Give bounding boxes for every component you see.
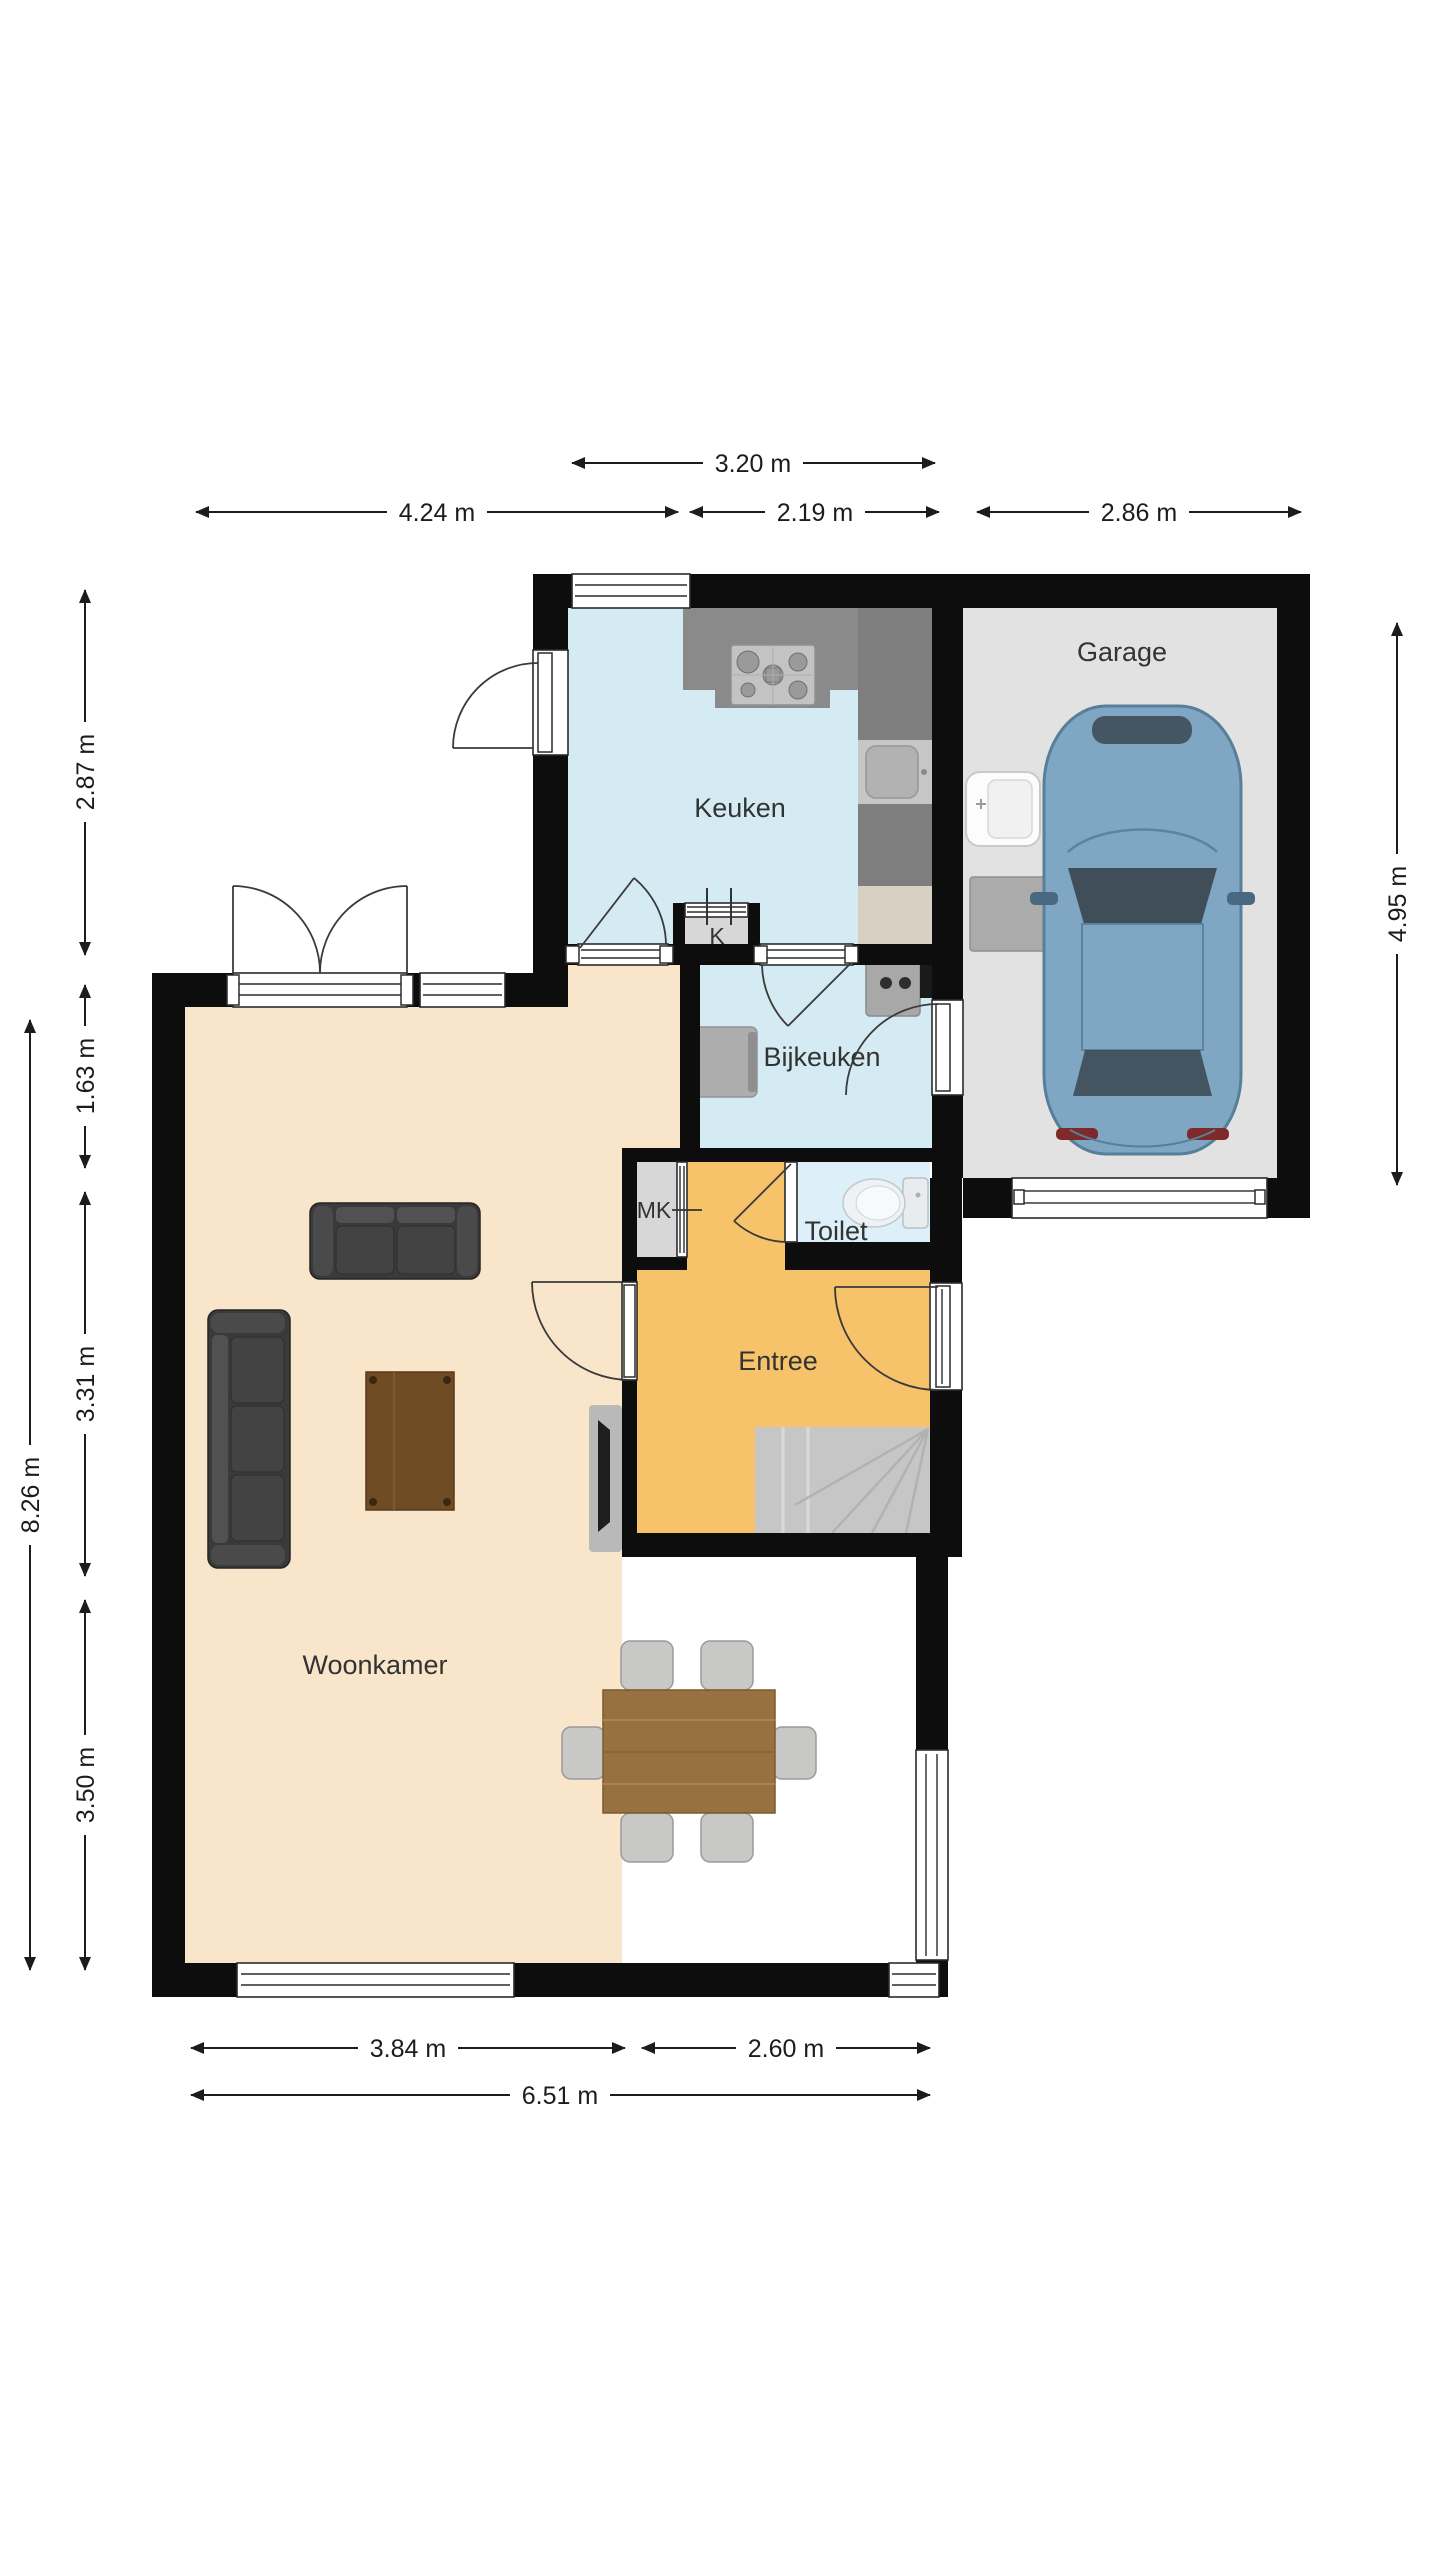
- freezer-edge: [748, 1032, 757, 1092]
- room-label-toilet: Toilet: [804, 1216, 868, 1246]
- chair-icon: [773, 1727, 816, 1779]
- closet-label-k: K: [709, 923, 725, 949]
- sofa-3seat-icon: [208, 1310, 290, 1568]
- coffee-table-icon: [366, 1372, 454, 1510]
- dimension-label: 3.31 m: [72, 1346, 100, 1422]
- car-mirror-right: [1227, 892, 1255, 905]
- car-mirror-left: [1030, 892, 1058, 905]
- dimension-bottom-260: 2.60 m: [642, 2033, 930, 2063]
- counter-beige: [858, 886, 932, 948]
- door-kitchen-back: [453, 650, 568, 755]
- tv-cabinet-icon: [589, 1405, 622, 1552]
- room-label-keuken: Keuken: [694, 793, 786, 823]
- dimension-label: 1.63 m: [72, 1038, 100, 1114]
- dimension-label: 8.26 m: [17, 1457, 45, 1533]
- dimension-top-424: 4.24 m: [196, 497, 678, 527]
- window-kitchen-top: [572, 574, 690, 608]
- garage-door: [1012, 1178, 1267, 1218]
- dimension-left-350: 3.50 m: [70, 1600, 100, 1970]
- floorplan-page: Keuken Garage Bijkeuken Toilet Entree Wo…: [0, 0, 1440, 2560]
- dimension-label: 2.87 m: [72, 734, 100, 810]
- dimension-left-287: 2.87 m: [70, 590, 100, 955]
- room-label-woonkamer: Woonkamer: [302, 1650, 447, 1680]
- room-label-bijkeuken: Bijkeuken: [763, 1042, 880, 1072]
- dimension-label: 2.19 m: [777, 499, 853, 527]
- dimension-left-331: 3.31 m: [70, 1192, 100, 1576]
- window-bottom-small: [889, 1963, 939, 1997]
- floorplan-svg: Keuken Garage Bijkeuken Toilet Entree Wo…: [0, 0, 1440, 2560]
- dimension-label: 4.24 m: [399, 499, 475, 527]
- dimension-top-320: 3.20 m: [572, 448, 935, 478]
- chair-icon: [701, 1813, 753, 1862]
- dimension-label: 2.60 m: [748, 2035, 824, 2063]
- chair-icon: [621, 1813, 673, 1862]
- dimension-label: 4.95 m: [1384, 866, 1412, 942]
- stove-icon: [731, 645, 815, 705]
- dimension-top-219: 2.19 m: [690, 497, 939, 527]
- dimension-left-826: 8.26 m: [15, 1020, 45, 1970]
- dimension-label: 3.50 m: [72, 1747, 100, 1823]
- car-icon: [1030, 706, 1255, 1154]
- dimension-label: 6.51 m: [522, 2082, 598, 2110]
- room-label-garage: Garage: [1077, 637, 1167, 667]
- chair-icon: [621, 1641, 673, 1690]
- garage-basin-icon: [966, 772, 1040, 846]
- room-label-entree: Entree: [738, 1346, 818, 1376]
- dimension-bottom-651: 6.51 m: [191, 2080, 930, 2110]
- window-woonkamer-right: [916, 1750, 948, 1960]
- door-french-woonkamer: [227, 886, 413, 1007]
- sink-icon: [866, 746, 918, 798]
- dimension-left-163: 1.63 m: [70, 985, 100, 1168]
- dimension-label: 3.84 m: [370, 2035, 446, 2063]
- sofa-2seat-icon: [310, 1203, 480, 1279]
- stairs-icon: [755, 1427, 930, 1533]
- dimension-right-495: 4.95 m: [1382, 623, 1412, 1185]
- chair-icon: [701, 1641, 753, 1690]
- dimension-bottom-384: 3.84 m: [191, 2033, 625, 2063]
- dimension-label: 2.86 m: [1101, 499, 1177, 527]
- window-bottom-large: [237, 1963, 514, 1997]
- closet-label-mk: MK: [637, 1197, 672, 1223]
- dimension-label: 3.20 m: [715, 450, 791, 478]
- tv-icon: [598, 1420, 610, 1532]
- chair-icon: [562, 1727, 605, 1779]
- window-woonkamer-top: [420, 973, 505, 1007]
- dimension-top-286: 2.86 m: [977, 497, 1301, 527]
